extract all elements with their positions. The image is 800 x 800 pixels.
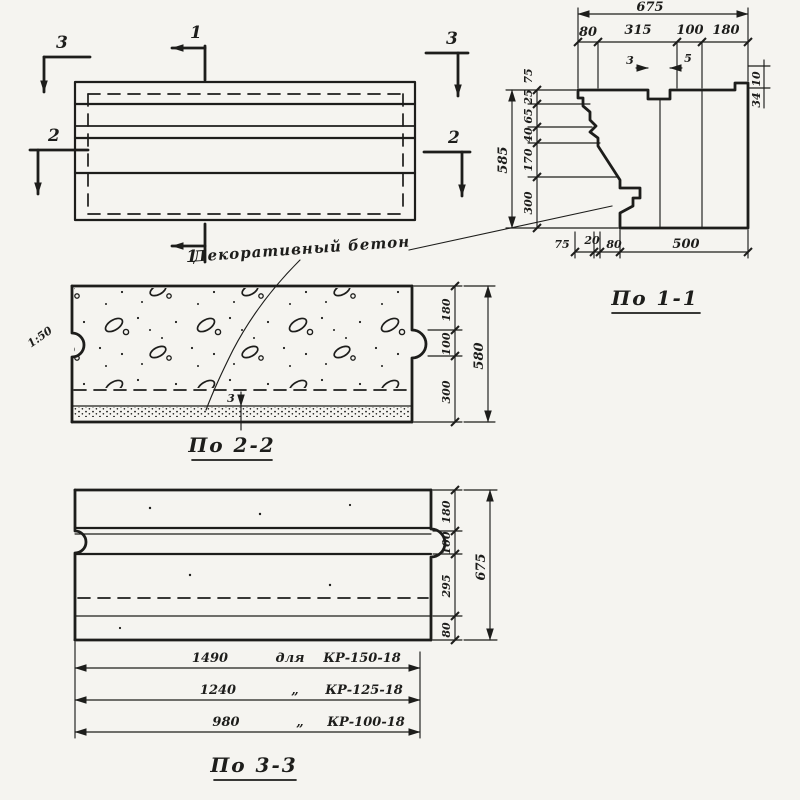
section-2-2-title: По 2-2 — [187, 433, 275, 457]
dim-580-s22: 580 — [472, 342, 487, 369]
section-1-1-dim-bottom-chain: 75 20 80 500 — [554, 230, 752, 258]
dim-notch-3: 3 — [626, 54, 634, 67]
dim-80-bottom: 80 — [606, 238, 622, 251]
dim-300-left: 300 — [522, 191, 535, 214]
slope-label: 1:50 — [25, 324, 55, 350]
ditto-1: „ — [291, 683, 298, 698]
section-mark-3-left: 3 — [44, 33, 90, 92]
dim-25-left: 25 — [522, 89, 535, 105]
section-1-1-dim-left-overall: 585 — [496, 90, 618, 228]
section-2-2-dim-right-overall: 580 — [464, 286, 495, 422]
section-1-1-title: По 1-1 — [610, 286, 698, 310]
dim-75-bottom: 75 — [554, 238, 569, 251]
elevation-hidden-lines — [88, 94, 403, 214]
dim-100-s22: 100 — [440, 332, 453, 355]
section-1-1-dim-top-chain: 80 315 100 180 — [574, 23, 752, 88]
section-3-3-outline — [75, 490, 445, 640]
section-mark-2-left-label: 2 — [47, 126, 60, 146]
length-980: 980 — [212, 715, 239, 730]
material-annotation-label: Декоративный бетон — [192, 232, 411, 265]
section-3-3-length-rows: 1490 для КР-150-18 1240 „ КР-125-18 980 … — [75, 642, 420, 738]
section-3-3-dim-right-chain: 180 100 295 80 — [433, 486, 462, 644]
section-2-2-texture — [74, 288, 410, 388]
dim-180-top: 180 — [712, 23, 739, 38]
mark-kr-125-18: КР-125-18 — [324, 683, 403, 698]
section-1-1-notch-dims: 3 5 — [626, 52, 692, 68]
dim-675-top: 675 — [636, 0, 663, 15]
section-2-2-title-group: По 2-2 — [187, 433, 275, 460]
mark-kr-150-18: КР-150-18 — [322, 651, 401, 666]
section-1-1-right-small-dims: 10 34 — [748, 60, 770, 108]
dim-675-s33: 675 — [474, 553, 489, 580]
ditto-2: „ — [296, 715, 303, 730]
dim-10-right: 10 — [750, 71, 763, 87]
section-1-1-profile — [578, 83, 748, 228]
section-1-1-title-group: По 1-1 — [610, 286, 700, 313]
dim-75-left-extra: 75 — [522, 68, 535, 83]
dim-notch-5: 5 — [684, 52, 692, 65]
word-dlya: для — [276, 651, 305, 666]
section-mark-2-left: 2 — [30, 126, 88, 194]
mark-kr-100-18: КР-100-18 — [326, 715, 405, 730]
section-1-1-view: 675 80 315 100 180 3 5 — [496, 0, 770, 313]
section-mark-2-right: 2 — [424, 128, 470, 196]
section-mark-1-top-label: 1 — [190, 23, 202, 43]
dim-100-top: 100 — [676, 23, 703, 38]
section-1-1-inner-lines — [660, 90, 702, 228]
dim-80-s33: 80 — [440, 622, 453, 638]
dim-585-left: 585 — [496, 146, 511, 173]
dim-180-s33: 180 — [440, 500, 453, 523]
dim-80-top: 80 — [579, 25, 597, 40]
dim-layer-3: 3 — [227, 392, 235, 405]
section-3-3-specks — [119, 504, 351, 629]
dim-170-left: 170 — [522, 148, 535, 171]
section-mark-1-top: 1 — [172, 23, 205, 80]
length-1240: 1240 — [200, 683, 236, 698]
section-3-3-dim-right-overall: 675 — [464, 490, 497, 640]
section-mark-3-left-label: 3 — [56, 33, 68, 53]
elevation-view: 1 1 3 3 2 2 — [30, 23, 470, 267]
section-1-1-dim-top-overall: 675 — [578, 0, 748, 88]
section-3-3-title: По 3-3 — [209, 753, 297, 777]
section-mark-3-right: 3 — [426, 29, 468, 96]
elevation-outline — [75, 82, 415, 220]
dim-300-s22: 300 — [440, 380, 453, 403]
dim-180-s22: 180 — [440, 298, 453, 321]
dim-40-left: 40 — [522, 127, 535, 143]
dim-100-s33: 100 — [440, 531, 453, 554]
section-2-2-view: 1:50 3 180 100 300 580 — [25, 282, 495, 460]
dim-65-left: 65 — [522, 108, 535, 123]
section-3-3-profile-lines — [75, 528, 431, 616]
blueprint-canvas: 1 1 3 3 2 2 — [0, 0, 800, 800]
section-3-3-view: 180 100 295 80 675 1490 для КР-150-18 12… — [75, 486, 497, 780]
dim-500-bottom: 500 — [672, 237, 699, 252]
length-1490: 1490 — [192, 651, 228, 666]
dim-20-bottom: 20 — [583, 234, 600, 247]
section-2-2-decorative-layer — [73, 407, 411, 417]
section-mark-3-right-label: 3 — [446, 29, 458, 49]
section-3-3-title-group: По 3-3 — [209, 753, 297, 780]
dim-34-right: 34 — [750, 92, 763, 107]
dim-295-s33: 295 — [440, 575, 453, 599]
section-mark-2-right-label: 2 — [447, 128, 460, 148]
dim-315-top: 315 — [624, 23, 651, 38]
